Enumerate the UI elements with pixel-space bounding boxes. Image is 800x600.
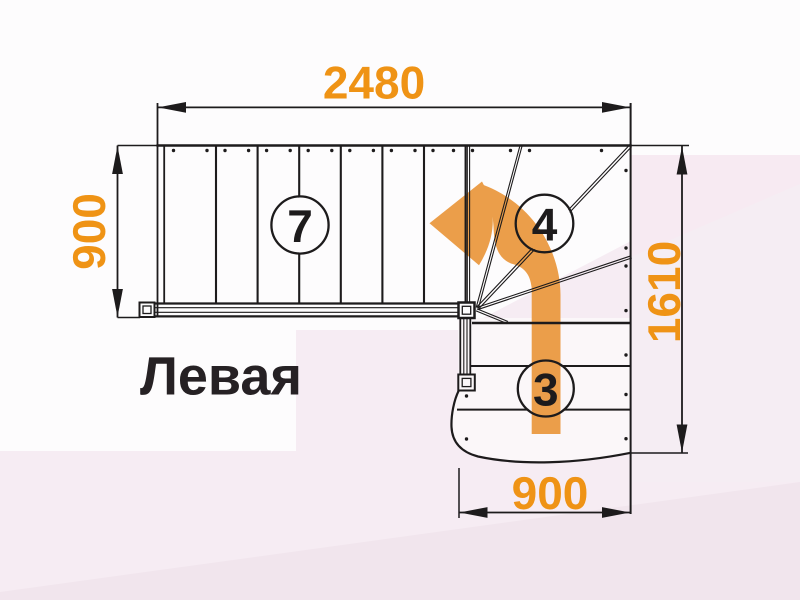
svg-text:Левая: Левая [140, 347, 302, 407]
svg-text:3: 3 [533, 363, 559, 415]
svg-text:2480: 2480 [323, 57, 425, 109]
svg-text:900: 900 [63, 193, 115, 270]
svg-text:4: 4 [532, 198, 558, 250]
svg-text:1610: 1610 [638, 241, 690, 343]
svg-text:900: 900 [512, 467, 589, 519]
svg-text:7: 7 [287, 200, 313, 252]
